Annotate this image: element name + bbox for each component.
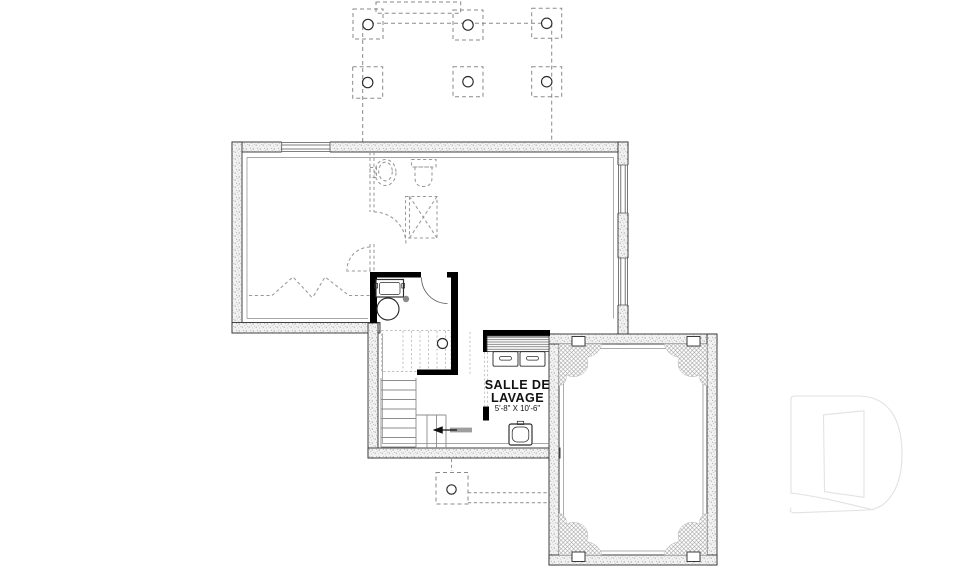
future-sink — [375, 160, 396, 186]
future-door-swing-2 — [347, 247, 370, 270]
future-closet-bifold — [249, 277, 370, 297]
exterior-walls — [232, 142, 717, 565]
porch-footing — [436, 459, 549, 504]
room-label-line2: LAVAGE — [491, 391, 544, 405]
window-right-2 — [617, 258, 628, 305]
floor-plan-page: SALLE DE LAVAGE 5'-8" X 10'-6" — [0, 0, 960, 569]
room-label-line1: SALLE DE — [485, 378, 550, 392]
laundry-counter — [487, 336, 549, 352]
pilaster — [687, 552, 700, 562]
inner-wall-lines — [247, 158, 703, 552]
builder-logo-d — [790, 396, 902, 513]
future-toilet — [412, 160, 437, 187]
future-door-swing — [374, 212, 406, 244]
pier-post — [542, 18, 552, 28]
deck-outline-above — [363, 2, 552, 142]
room-dimensions: 5'-8" X 10'-6" — [495, 404, 541, 413]
corner-hatch — [559, 344, 602, 386]
pier-post — [463, 20, 473, 30]
floor-drain — [403, 296, 409, 302]
corner-hatch — [664, 513, 707, 555]
pier-post — [363, 19, 373, 29]
laundry-sink — [509, 421, 532, 445]
pier-post — [463, 77, 473, 87]
bathroom-vanity — [375, 280, 405, 298]
dryer — [520, 352, 545, 367]
deck-pier-footings — [353, 8, 562, 98]
bathroom — [370, 272, 458, 375]
staircase — [381, 378, 472, 448]
telepost-column — [438, 339, 448, 349]
corner-hatch — [559, 513, 602, 555]
laundry-room: SALLE DE LAVAGE 5'-8" X 10'-6" — [483, 330, 550, 445]
window-right-1 — [617, 165, 628, 213]
pilaster — [572, 337, 585, 347]
future-bathroom — [346, 152, 437, 271]
pilaster — [687, 337, 700, 347]
washer — [493, 352, 518, 367]
pilaster — [572, 552, 585, 562]
corner-hatch — [664, 344, 707, 386]
porch-post — [447, 485, 456, 494]
pier-post — [542, 77, 552, 87]
bathroom-door-swing — [422, 278, 448, 304]
window-top — [282, 141, 330, 152]
basement-floor-plan: SALLE DE LAVAGE 5'-8" X 10'-6" — [0, 0, 960, 569]
garage-room — [559, 337, 707, 562]
pier-post — [363, 77, 373, 87]
bathroom-toilet — [377, 298, 399, 320]
future-shower — [406, 197, 438, 239]
